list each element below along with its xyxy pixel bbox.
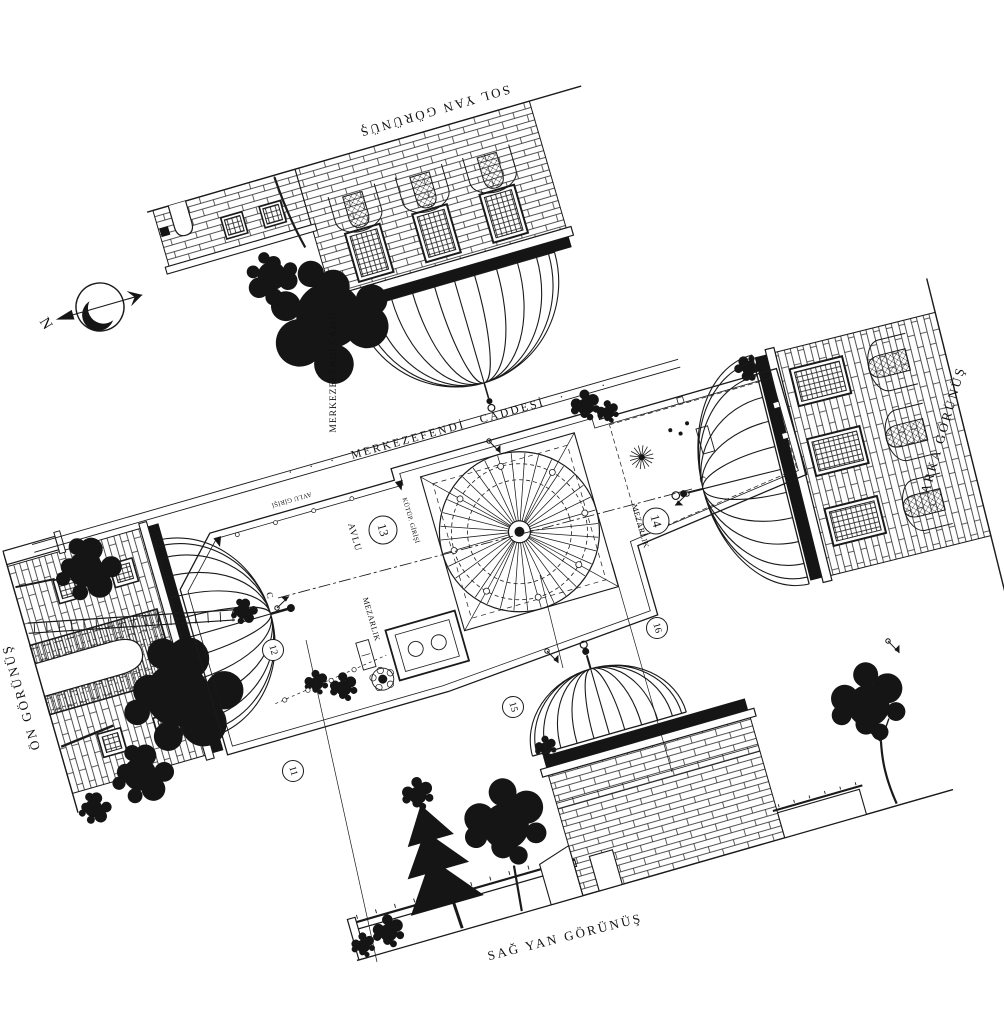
bush	[74, 788, 115, 828]
elevation-right-side-view	[288, 555, 953, 962]
dome-finial	[481, 382, 496, 412]
marker-16: 16	[647, 618, 668, 639]
marker-11: 11	[283, 761, 304, 782]
north-arrow: N	[30, 272, 149, 349]
library-entrance-label: KÜTÜP. GİRİŞİ	[401, 497, 421, 544]
dome-finial	[579, 640, 594, 669]
section-letter-left: C	[264, 591, 275, 600]
marker-14: 14	[643, 508, 669, 534]
dome-roof-plan	[420, 433, 618, 631]
section-flag	[885, 635, 903, 656]
dome-finial	[671, 485, 704, 500]
entrance-arrow	[395, 480, 405, 492]
dome-finial	[270, 603, 296, 618]
marker-15: 15	[503, 697, 524, 718]
section-letter-right: C	[697, 475, 708, 484]
north-label: N	[36, 315, 55, 333]
fountain-plan	[368, 664, 398, 693]
cemetery-left-label: MEZARLIK	[361, 596, 382, 642]
elevation-left-side-view	[147, 86, 661, 488]
right-tree	[820, 654, 933, 814]
building-name-label: MERKEZEFENDİ CAMİİ	[327, 311, 339, 432]
courtyard-trees	[301, 660, 361, 712]
marker-13: 13	[369, 516, 397, 544]
site-boundary-wall-inner	[173, 368, 829, 747]
view-title-right-side: SAĞ YAN GÖRÜNÜŞ	[486, 910, 644, 963]
marker-12: 12	[263, 640, 284, 661]
tomb-building-plan	[385, 611, 469, 681]
courtyard-label: AVLU	[345, 522, 363, 553]
architectural-drawing-sheet: N SOL YAN GÖRÜNÜŞ ARKA GÖRÜNÜŞ ÖN GÖRÜNÜ…	[0, 0, 1004, 1024]
